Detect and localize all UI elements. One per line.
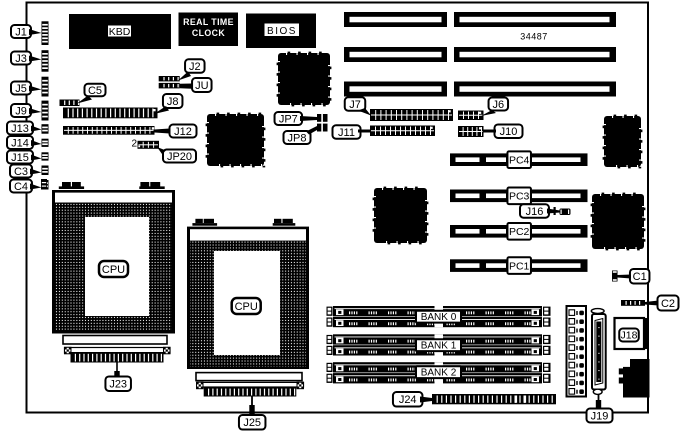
svg-text:REAL TIME: REAL TIME (183, 17, 234, 27)
svg-text:PC4: PC4 (509, 154, 530, 166)
svg-text:C5: C5 (88, 85, 102, 97)
svg-text:JP7: JP7 (279, 113, 298, 125)
svg-text:C3: C3 (14, 166, 28, 178)
svg-text:J16: J16 (526, 206, 544, 218)
svg-text:J11: J11 (338, 127, 355, 139)
svg-text:J23: J23 (109, 379, 127, 391)
svg-text:J18: J18 (621, 330, 638, 342)
svg-text:CPU: CPU (235, 301, 258, 313)
svg-text:J24: J24 (399, 394, 417, 406)
svg-text:J19: J19 (591, 410, 609, 422)
svg-text:J25: J25 (243, 417, 261, 429)
svg-text:C2: C2 (661, 298, 675, 310)
svg-text:J9: J9 (15, 105, 27, 117)
svg-text:J3: J3 (15, 53, 27, 65)
svg-text:BANK 0: BANK 0 (421, 312, 457, 323)
svg-text:CLOCK: CLOCK (192, 28, 226, 38)
svg-text:CPU: CPU (102, 264, 125, 276)
svg-text:C4: C4 (14, 181, 28, 193)
svg-text:BANK 2: BANK 2 (421, 368, 457, 379)
svg-text:PC3: PC3 (509, 190, 530, 202)
svg-text:2: 2 (132, 139, 138, 150)
svg-text:PC1: PC1 (509, 260, 530, 272)
svg-text:PC2: PC2 (509, 226, 530, 238)
svg-text:J14: J14 (11, 137, 29, 149)
svg-text:JU: JU (195, 80, 209, 92)
svg-text:J7: J7 (349, 99, 361, 111)
svg-text:J6: J6 (492, 99, 504, 111)
svg-text:J10: J10 (500, 126, 518, 138)
svg-text:BANK 1: BANK 1 (421, 341, 457, 352)
svg-text:J5: J5 (15, 83, 27, 95)
svg-text:J1: J1 (15, 26, 27, 38)
svg-text:KBD: KBD (109, 26, 131, 38)
svg-text:J2: J2 (189, 61, 201, 73)
svg-text:J12: J12 (174, 126, 192, 138)
svg-text:J13: J13 (11, 123, 29, 135)
svg-text:BIOS: BIOS (267, 26, 297, 37)
svg-text:JP20: JP20 (167, 151, 192, 163)
svg-text:JP8: JP8 (288, 132, 307, 144)
svg-text:J15: J15 (11, 152, 29, 164)
svg-text:J8: J8 (167, 96, 179, 108)
svg-text:C1: C1 (633, 271, 647, 283)
svg-text:34487: 34487 (520, 32, 548, 42)
